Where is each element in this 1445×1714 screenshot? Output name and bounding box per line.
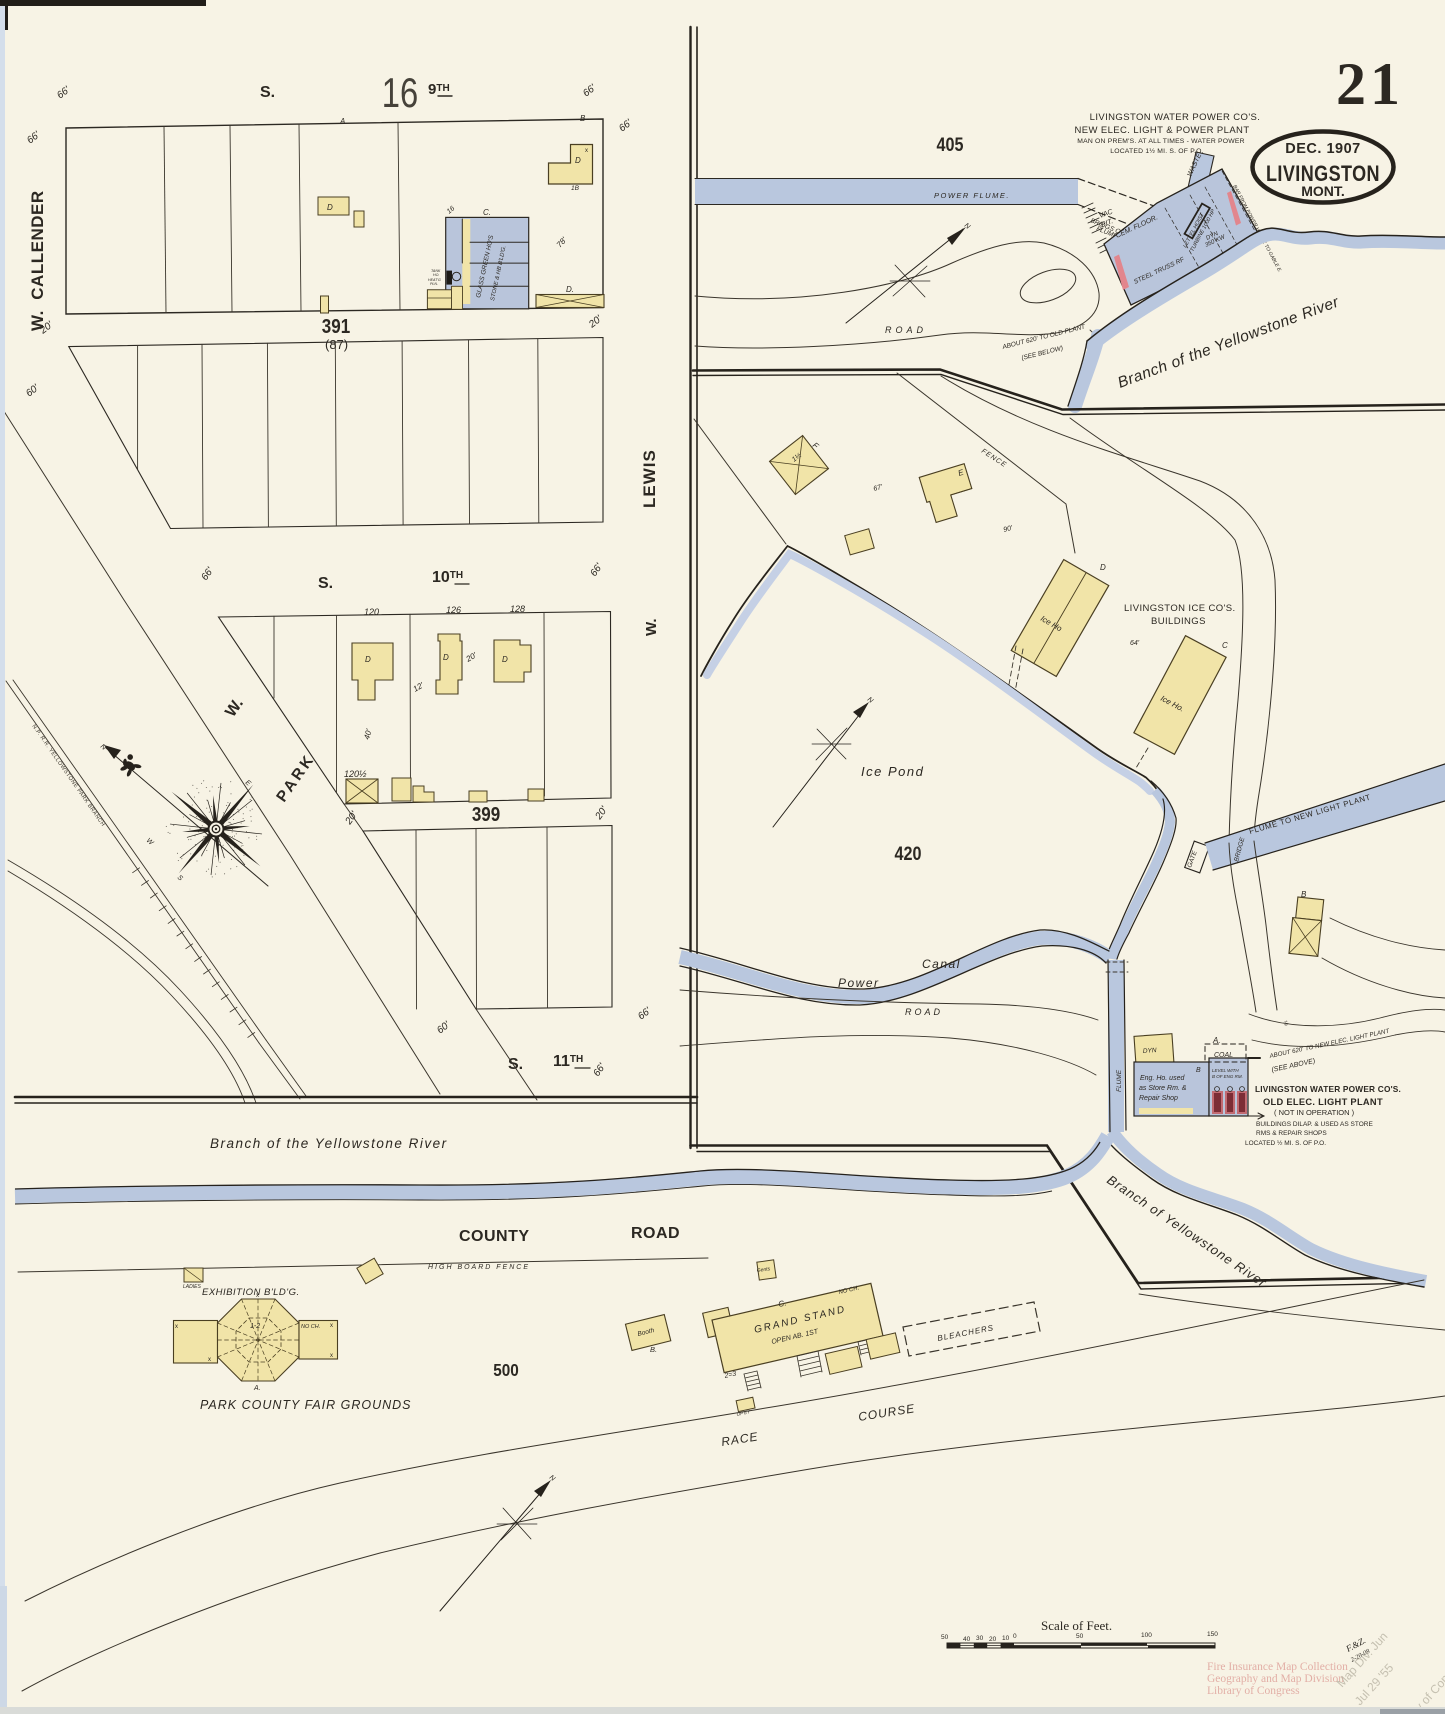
svg-text:B: B bbox=[580, 114, 586, 123]
svg-text:ROAD: ROAD bbox=[631, 1225, 680, 1242]
svg-text:ROAD: ROAD bbox=[905, 1007, 943, 1017]
svg-text:A: A bbox=[339, 117, 345, 126]
svg-text:D: D bbox=[575, 156, 581, 165]
svg-text:PARK COUNTY FAIR GROUNDS: PARK COUNTY FAIR GROUNDS bbox=[200, 1398, 412, 1412]
svg-text:ROAD: ROAD bbox=[885, 325, 927, 335]
svg-text:B OF ENG RM.: B OF ENG RM. bbox=[1212, 1074, 1243, 1079]
svg-text:Fire Insurance Map Collection: Fire Insurance Map Collection bbox=[1207, 1661, 1348, 1673]
svg-text:LIVINGSTON WATER POWER CO'S: LIVINGSTON WATER POWER CO'S. bbox=[1255, 1084, 1401, 1094]
svg-text:x: x bbox=[330, 1353, 333, 1359]
svg-text:20: 20 bbox=[989, 1636, 997, 1643]
svg-text:BUILDINGS: BUILDINGS bbox=[1151, 616, 1206, 627]
svg-text:BUILDINGS DILAP. & USED AS STO: BUILDINGS DILAP. & USED AS STORE bbox=[1256, 1121, 1373, 1128]
svg-text:16: 16 bbox=[382, 69, 418, 116]
svg-text:( NOT IN OPERATION ): ( NOT IN OPERATION ) bbox=[1274, 1108, 1355, 1117]
svg-text:B: B bbox=[1196, 1067, 1201, 1074]
svg-text:D: D bbox=[365, 655, 371, 664]
svg-text:C.: C. bbox=[483, 208, 491, 217]
svg-text:0: 0 bbox=[1013, 1633, 1017, 1640]
svg-text:120: 120 bbox=[364, 607, 379, 617]
svg-text:W.: W. bbox=[643, 619, 660, 637]
svg-text:126: 126 bbox=[446, 605, 461, 615]
svg-text:EXHIBITION B'LD'G.: EXHIBITION B'LD'G. bbox=[202, 1287, 300, 1298]
svg-text:LADIES: LADIES bbox=[183, 1284, 201, 1290]
svg-text:NEW ELEC. LIGHT & POWER P: NEW ELEC. LIGHT & POWER PLANT bbox=[1074, 125, 1249, 136]
svg-text:x: x bbox=[208, 1357, 211, 1363]
svg-text:S.: S. bbox=[318, 575, 333, 592]
svg-text:as Store Rm. &: as Store Rm. & bbox=[1139, 1085, 1187, 1092]
svg-text:128: 128 bbox=[510, 604, 525, 614]
svg-text:391: 391 bbox=[322, 315, 350, 338]
svg-text:Canal: Canal bbox=[922, 957, 961, 971]
svg-text:S.: S. bbox=[508, 1056, 523, 1073]
svg-text:500: 500 bbox=[493, 1360, 519, 1380]
svg-text:64': 64' bbox=[1130, 640, 1140, 647]
svg-text:LIVINGSTON WATER POWER C: LIVINGSTON WATER POWER CO'S. bbox=[1090, 112, 1261, 123]
svg-text:A.: A. bbox=[253, 1385, 261, 1392]
svg-text:FLUME: FLUME bbox=[1116, 1069, 1123, 1092]
svg-text:D: D bbox=[1100, 563, 1106, 572]
svg-text:PLN.: PLN. bbox=[430, 282, 438, 286]
svg-text:x: x bbox=[175, 1324, 178, 1330]
svg-text:21: 21 bbox=[1336, 51, 1404, 117]
svg-text:50: 50 bbox=[941, 1634, 949, 1641]
svg-text:B.: B. bbox=[650, 1345, 657, 1354]
svg-text:LIVINGSTON ICE CO'S.: LIVINGSTON ICE CO'S. bbox=[1124, 603, 1236, 614]
svg-text:Eng. Ho. used: Eng. Ho. used bbox=[1140, 1075, 1185, 1082]
svg-text:HO.: HO. bbox=[433, 273, 439, 277]
svg-text:Branch of the Yellowstone: Branch of the Yellowstone River bbox=[210, 1136, 448, 1151]
svg-text:Ice Pond: Ice Pond bbox=[861, 764, 924, 779]
svg-text:D: D bbox=[502, 655, 508, 664]
svg-text:1B: 1B bbox=[571, 185, 580, 192]
svg-text:LEWIS: LEWIS bbox=[640, 449, 659, 508]
svg-text:C: C bbox=[1222, 641, 1228, 650]
svg-text:Library of Congress: Library of Congress bbox=[1207, 1685, 1300, 1697]
svg-text:100: 100 bbox=[1141, 1632, 1152, 1639]
svg-text:OLD ELEC. LIGHT PLANT: OLD ELEC. LIGHT PLANT bbox=[1263, 1097, 1383, 1107]
svg-text:40: 40 bbox=[963, 1636, 971, 1643]
svg-text:399: 399 bbox=[472, 803, 500, 826]
svg-text:DYN: DYN bbox=[1143, 1047, 1157, 1055]
svg-text:POWER FLUME.: POWER FLUME. bbox=[934, 191, 1010, 200]
svg-text:D: D bbox=[327, 203, 333, 212]
svg-text:HIGH BOARD FENCE: HIGH BOARD FENCE bbox=[428, 1264, 530, 1271]
svg-text:A.: A. bbox=[1212, 1036, 1221, 1045]
svg-text:COAL: COAL bbox=[1214, 1052, 1233, 1059]
svg-text:W. CALLENDER: W. CALLENDER bbox=[28, 190, 47, 331]
svg-text:150: 150 bbox=[1207, 1631, 1218, 1638]
svg-text:D.: D. bbox=[566, 285, 574, 294]
svg-text:MONT.: MONT. bbox=[1301, 183, 1345, 199]
svg-text:30: 30 bbox=[976, 1635, 984, 1642]
svg-text:S.: S. bbox=[260, 84, 275, 101]
svg-text:405: 405 bbox=[937, 134, 964, 156]
svg-text:COUNTY: COUNTY bbox=[459, 1228, 530, 1245]
svg-text:x: x bbox=[330, 1323, 333, 1329]
svg-text:DEC. 1907: DEC. 1907 bbox=[1285, 141, 1360, 157]
svg-text:1-2: 1-2 bbox=[250, 1323, 260, 1330]
svg-text:RMS & REPAIR SHOPS: RMS & REPAIR SHOPS bbox=[1256, 1130, 1327, 1137]
svg-text:D: D bbox=[443, 653, 449, 662]
svg-text:420: 420 bbox=[895, 843, 922, 865]
svg-text:B: B bbox=[1301, 890, 1307, 899]
svg-text:MAN ON PREM'S. AT ALL TIMES -: MAN ON PREM'S. AT ALL TIMES - WATER POWE… bbox=[1077, 138, 1244, 145]
svg-text:(87): (87) bbox=[325, 337, 348, 352]
svg-text:x: x bbox=[585, 148, 588, 154]
svg-text:Power: Power bbox=[838, 976, 880, 990]
svg-text:120½: 120½ bbox=[344, 769, 367, 779]
svg-text:LOCATED 1½ MI. S. OF P.O.: LOCATED 1½ MI. S. OF P.O. bbox=[1110, 147, 1204, 155]
svg-text:Repair Shop: Repair Shop bbox=[1139, 1095, 1178, 1102]
svg-text:LOCATED ½ MI. S. OF P.O.: LOCATED ½ MI. S. OF P.O. bbox=[1245, 1139, 1326, 1147]
svg-text:Geography and Map Division: Geography and Map Division bbox=[1207, 1673, 1344, 1685]
svg-text:Scale of Feet.: Scale of Feet. bbox=[1041, 1618, 1112, 1633]
svg-text:10: 10 bbox=[1002, 1635, 1010, 1642]
svg-text:x: x bbox=[256, 1293, 259, 1299]
svg-text:LEVEL WITH: LEVEL WITH bbox=[1212, 1068, 1239, 1073]
svg-text:NO CH.: NO CH. bbox=[301, 1324, 320, 1330]
svg-text:50: 50 bbox=[1076, 1633, 1084, 1640]
